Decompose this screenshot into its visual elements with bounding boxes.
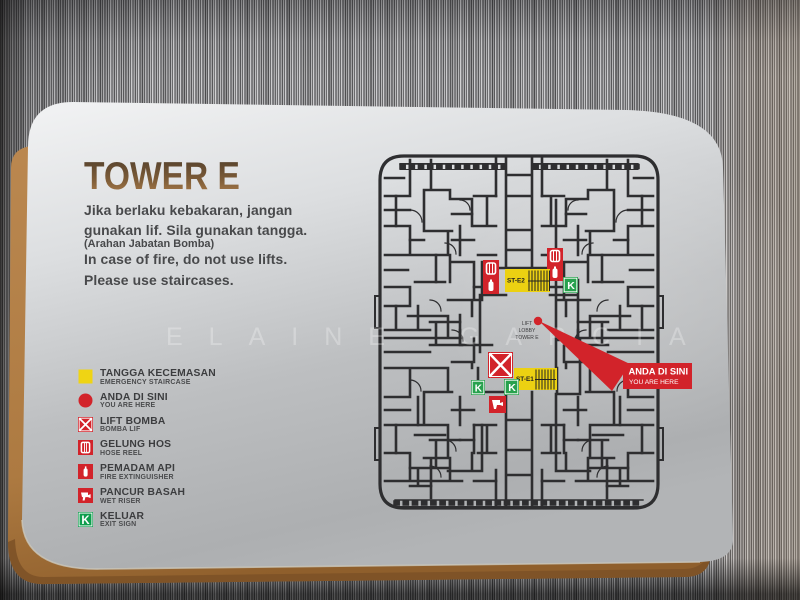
- svg-text:K: K: [475, 384, 483, 395]
- svg-text:K: K: [81, 515, 90, 527]
- svg-text:ST-E2: ST-E2: [507, 278, 525, 285]
- svg-text:ANDA DI SINI: ANDA DI SINI: [629, 366, 689, 377]
- svg-text:LOBBY: LOBBY: [519, 328, 536, 334]
- svg-text:LIFT: LIFT: [522, 321, 532, 327]
- svg-text:ELAINE GARCIA: ELAINE GARCIA: [166, 323, 712, 351]
- svg-text:TOWER E: TOWER E: [515, 335, 539, 341]
- svg-text:YOU ARE HERE: YOU ARE HERE: [629, 379, 679, 386]
- svg-text:K: K: [567, 280, 575, 292]
- svg-text:K: K: [508, 382, 516, 394]
